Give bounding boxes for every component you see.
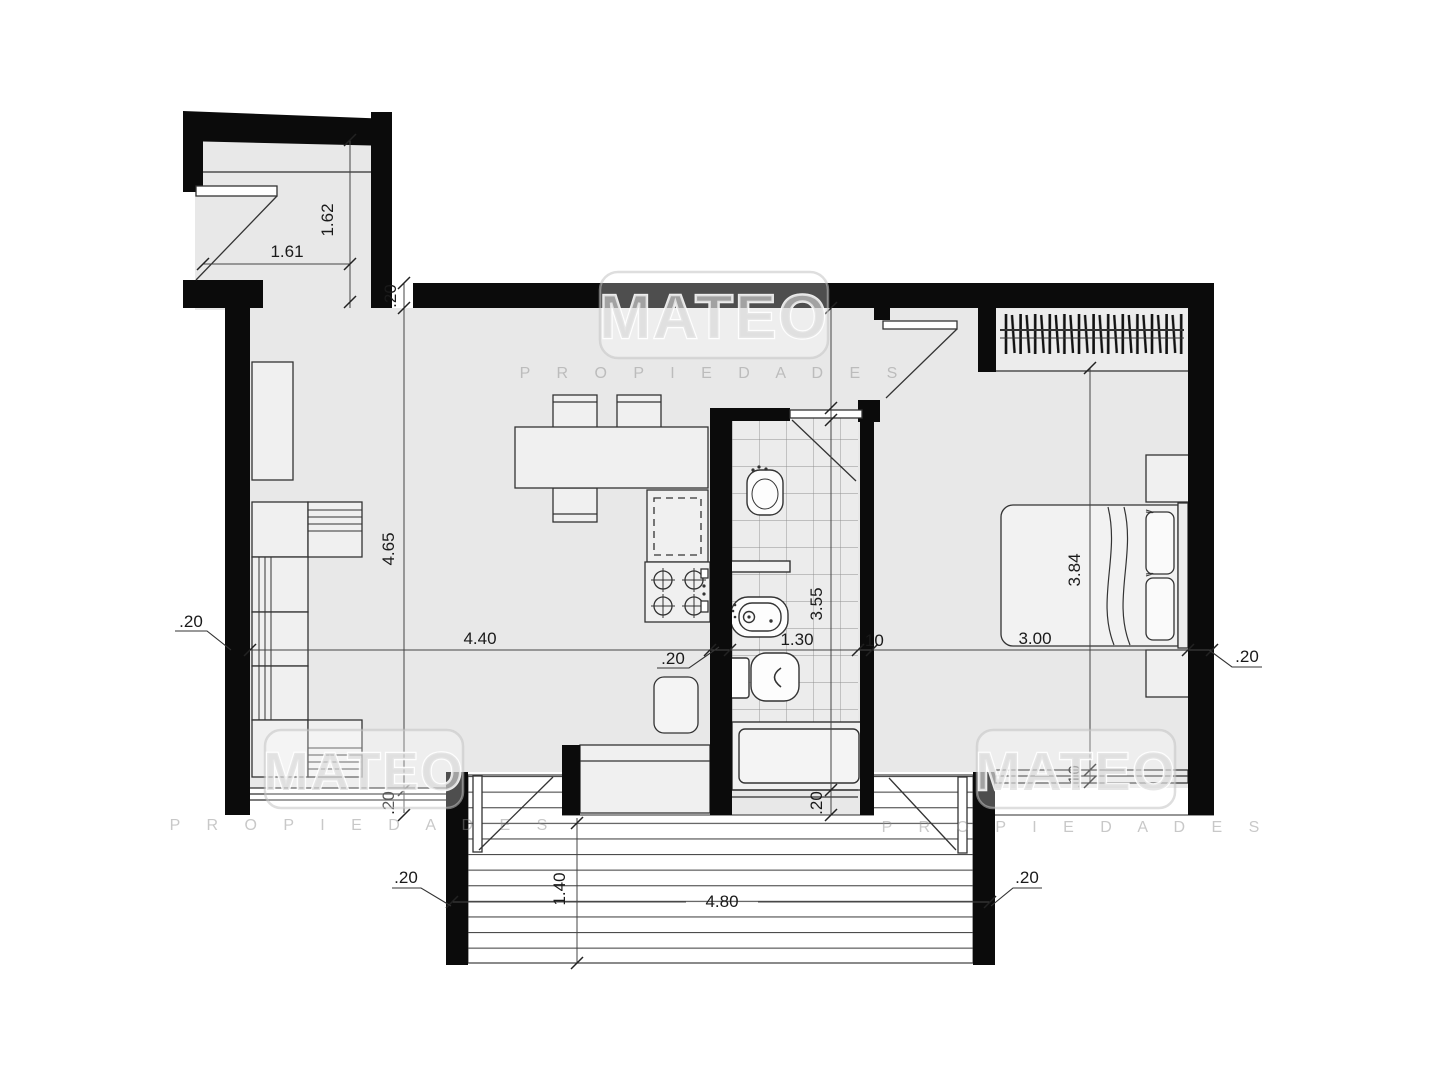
dim-entry-depth: 1.62	[318, 203, 337, 236]
kitchen-basin	[654, 677, 698, 733]
bidet	[731, 597, 788, 637]
watermark-subtitle: P R O P I E D A D E S	[170, 817, 559, 834]
entry-corner-wall	[183, 280, 263, 308]
watermark-brand: MATEO	[264, 742, 465, 802]
toilet	[729, 653, 799, 701]
bath-shelf	[728, 561, 790, 572]
dim-deck-right-wall: .20	[1015, 868, 1039, 887]
entry-right-wall	[371, 112, 392, 308]
floor-plan-svg: 1.61 1.62 .20 4.65 4.40 .20 .20 1.30 3.5…	[0, 0, 1440, 1080]
entry-left-wall	[183, 112, 203, 192]
dim-bath-bottom-wall: .20	[807, 791, 826, 815]
counter-stub-wall	[562, 745, 580, 815]
bath-bedroom-partition	[860, 420, 874, 815]
dim-kitchen-wall: .20	[661, 649, 685, 668]
kitchen-sink-counter	[647, 490, 708, 562]
sideboard	[252, 362, 293, 480]
bathtub	[732, 722, 866, 790]
dim-bedroom-depth: 3.84	[1065, 553, 1084, 586]
closet-side-wall	[978, 308, 996, 372]
dim-deck-left-wall: .20	[394, 868, 418, 887]
bedroom-door-jamb	[874, 308, 890, 320]
watermark-subtitle: P R O P I E D A D E S	[520, 365, 909, 382]
dim-deck-width: 4.80	[705, 892, 738, 911]
dim-bedroom-width: 3.00	[1018, 629, 1051, 648]
stove	[645, 562, 710, 622]
dim-bath-depth: 3.55	[807, 587, 826, 620]
kitchen-bath-wall	[710, 408, 732, 815]
watermark-subtitle: P R O P I E D A D E S	[882, 819, 1271, 836]
dining-table	[515, 427, 708, 488]
floor-plan-page: 1.61 1.62 .20 4.65 4.40 .20 .20 1.30 3.5…	[0, 0, 1440, 1080]
nightstand	[1146, 455, 1190, 502]
watermark-brand: MATEO	[976, 742, 1177, 802]
dim-living-width: 4.40	[463, 629, 496, 648]
dim-living-depth: 4.65	[379, 532, 398, 565]
nightstand	[1146, 650, 1190, 697]
dim-entry-width: 1.61	[270, 242, 303, 261]
dim-bath-width: 1.30	[780, 630, 813, 649]
dim-deck-depth: 1.40	[550, 872, 569, 905]
west-wall	[225, 308, 250, 815]
dim-top-wall: .20	[381, 284, 400, 308]
closet	[996, 309, 1188, 371]
kitchen-counter	[580, 745, 710, 813]
bath-top-wall	[710, 408, 790, 421]
dim-left-wall: .20	[179, 612, 203, 631]
east-wall	[1188, 283, 1214, 815]
entry-top-wall	[183, 111, 392, 146]
watermark-brand: MATEO	[599, 283, 828, 352]
dim-partition: .10	[860, 631, 884, 650]
washbasin	[747, 465, 783, 515]
bed	[1001, 503, 1188, 648]
dim-right-wall: .20	[1235, 647, 1259, 666]
